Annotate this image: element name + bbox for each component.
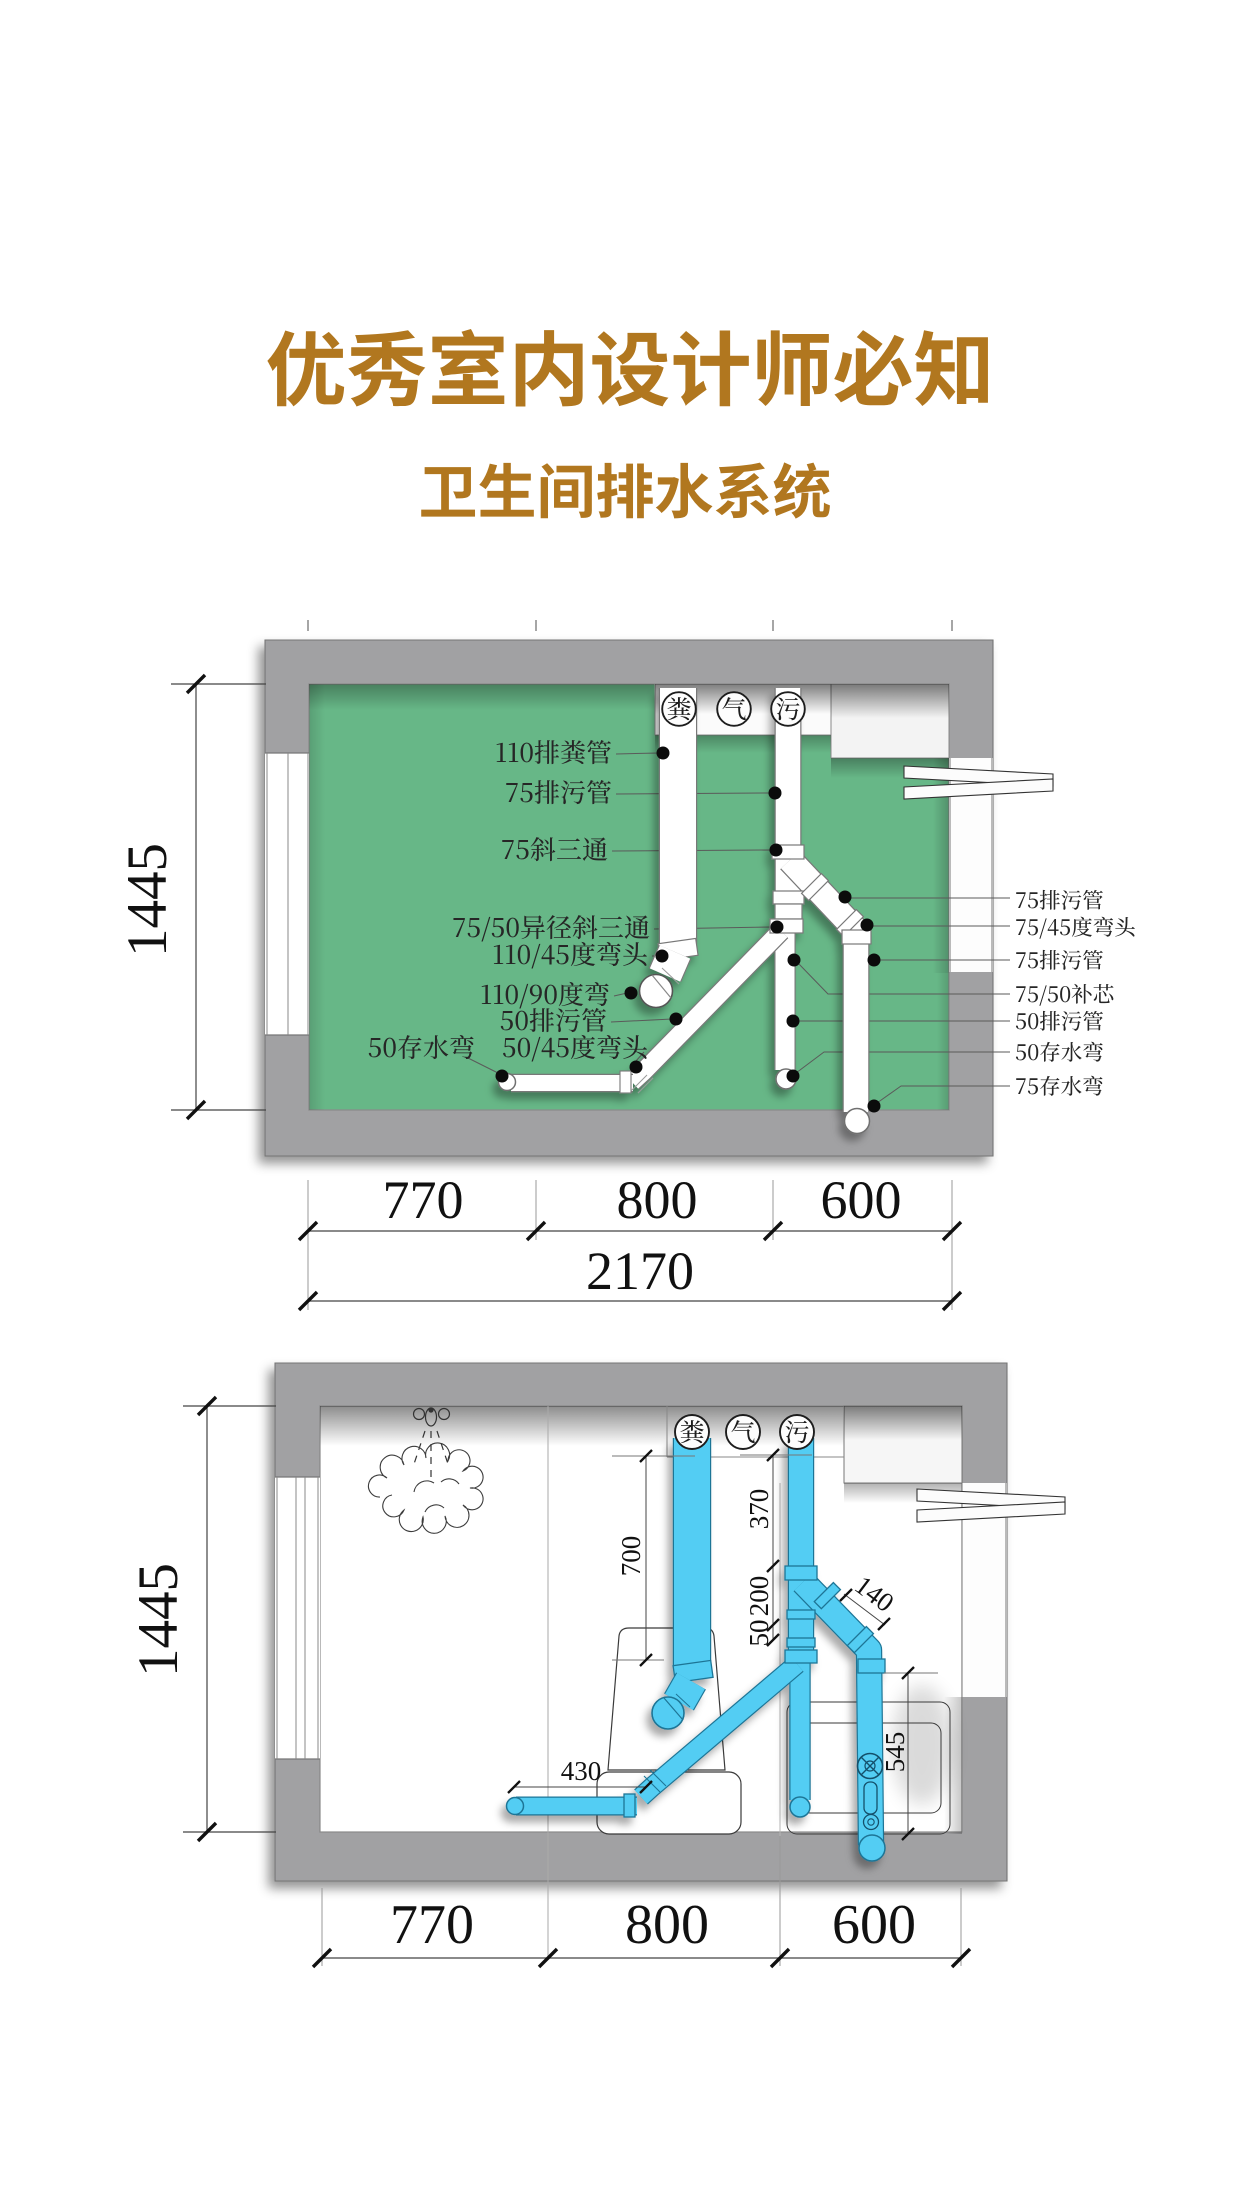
svg-text:700: 700 [616,1536,646,1577]
svg-text:800: 800 [625,1894,709,1956]
svg-text:50: 50 [744,1620,774,1647]
svg-text:770: 770 [383,1170,464,1230]
svg-text:430: 430 [561,1756,602,1786]
svg-text:1445: 1445 [116,843,179,957]
svg-text:370: 370 [744,1489,774,1530]
svg-text:600: 600 [832,1894,916,1956]
svg-text:770: 770 [390,1894,474,1956]
svg-text:1445: 1445 [127,1563,190,1677]
svg-text:600: 600 [821,1170,902,1230]
svg-text:2170: 2170 [586,1241,694,1301]
svg-text:200: 200 [744,1576,774,1617]
svg-text:545: 545 [880,1732,910,1773]
svg-text:800: 800 [617,1170,698,1230]
